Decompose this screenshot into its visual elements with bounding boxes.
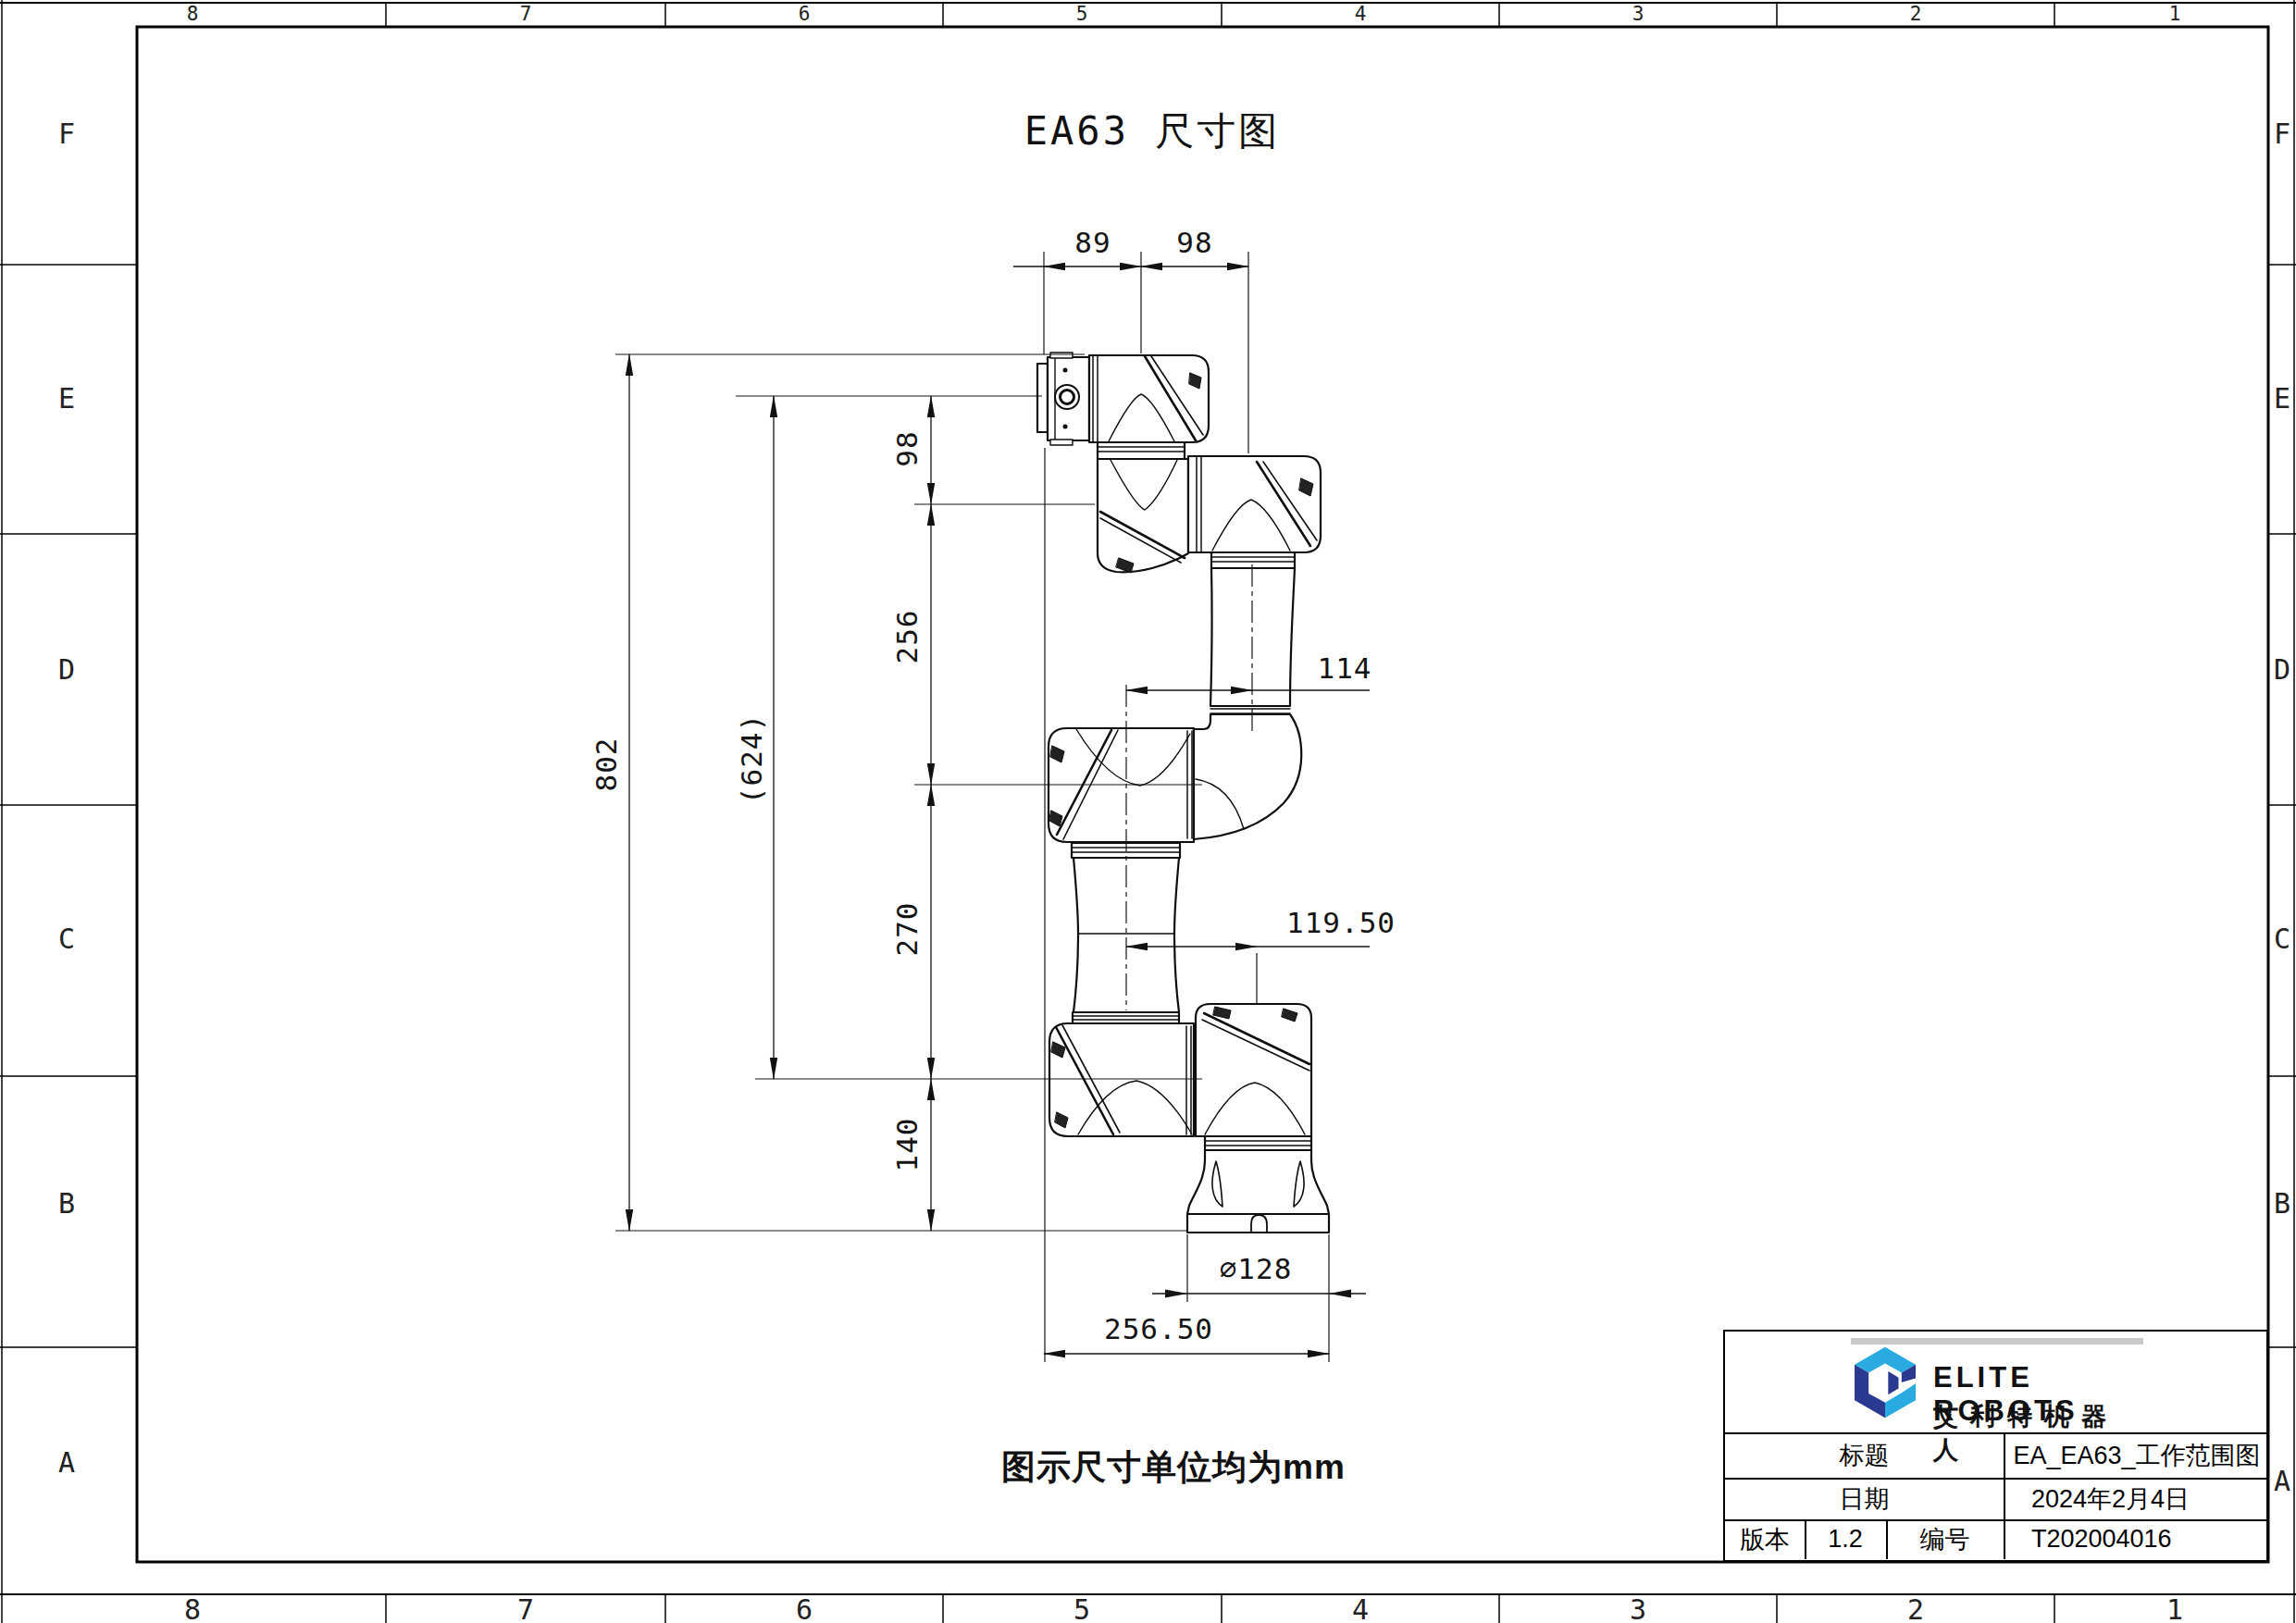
- zone-row-right-e: E: [2274, 382, 2290, 415]
- number-value-cell: T202004016: [2004, 1519, 2270, 1559]
- zone-row-right-c: C: [2274, 923, 2290, 955]
- zone-row-left-c: C: [58, 923, 75, 955]
- zone-col-top-1: 1: [2169, 3, 2181, 25]
- zone-col-top-7: 7: [520, 3, 532, 25]
- dim-119-50: 119.50: [1286, 906, 1396, 939]
- title-block: ELITE ROBOTS 艾利特机器人 标题 EA_EA63_工作范围图 日期 …: [1723, 1330, 2268, 1562]
- dim-256-50: 256.50: [1104, 1312, 1213, 1345]
- zone-col-top-4: 4: [1355, 3, 1367, 25]
- drawing-sheet: EA63 尺寸图 89 98 98 256 270 140 802 (624) …: [0, 0, 2296, 1623]
- date-label-cell: 日期: [1725, 1478, 2004, 1519]
- zone-col-top-5: 5: [1076, 3, 1088, 25]
- zone-col-bot-5: 5: [1074, 1593, 1090, 1623]
- zone-col-bot-6: 6: [796, 1593, 813, 1623]
- zone-col-bot-2: 2: [1907, 1593, 1924, 1623]
- zone-col-top-8: 8: [187, 3, 199, 25]
- dim-256: 256: [890, 610, 924, 664]
- zone-col-bot-1: 1: [2166, 1593, 2183, 1623]
- dim-89: 89: [1074, 226, 1111, 259]
- date-value-cell: 2024年2月4日: [2004, 1478, 2270, 1519]
- dim-624: (624): [735, 713, 768, 804]
- logo-row: ELITE ROBOTS 艾利特机器人: [1725, 1332, 2266, 1432]
- zone-row-right-b: B: [2274, 1187, 2290, 1220]
- version-value-cell: 1.2: [1805, 1519, 1886, 1559]
- zone-row-left-a: A: [58, 1446, 75, 1479]
- title-label-cell: 标题: [1725, 1432, 2004, 1478]
- zone-row-left-e: E: [58, 382, 75, 415]
- number-label-cell: 编号: [1886, 1519, 2004, 1559]
- dim-dia-128: ∅128: [1220, 1252, 1293, 1285]
- zone-col-top-3: 3: [1632, 3, 1644, 25]
- dim-98-top: 98: [1176, 226, 1212, 259]
- dim-140: 140: [890, 1118, 924, 1172]
- zone-col-top-2: 2: [1910, 3, 1922, 25]
- zone-row-right-a: A: [2274, 1465, 2290, 1497]
- zone-col-bot-4: 4: [1352, 1593, 1369, 1623]
- robot-arm-outline: [1037, 353, 1329, 1233]
- zone-row-right-d: D: [2274, 653, 2290, 686]
- dim-270: 270: [890, 902, 924, 957]
- zone-row-left-f: F: [58, 118, 75, 150]
- title-value-cell: EA_EA63_工作范围图: [2004, 1432, 2270, 1478]
- page-title: EA63 尺寸图: [1024, 105, 1280, 157]
- zone-col-bot-7: 7: [517, 1593, 534, 1623]
- dim-114: 114: [1318, 651, 1372, 685]
- zone-col-bot-3: 3: [1630, 1593, 1646, 1623]
- dim-802: 802: [590, 737, 623, 792]
- units-note: 图示尺寸单位均为mm: [1001, 1444, 1346, 1491]
- zone-row-left-d: D: [58, 653, 75, 686]
- zone-row-right-f: F: [2274, 118, 2290, 150]
- zone-col-bot-8: 8: [184, 1593, 201, 1623]
- version-label-cell: 版本: [1725, 1519, 1805, 1559]
- elite-robots-logo-icon: [1855, 1344, 1916, 1421]
- dim-98-side: 98: [890, 430, 924, 466]
- zone-row-left-b: B: [58, 1187, 75, 1220]
- zone-col-top-6: 6: [799, 3, 811, 25]
